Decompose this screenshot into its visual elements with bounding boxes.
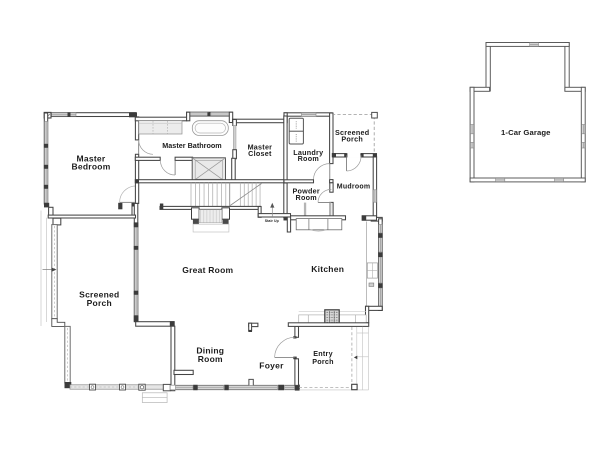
svg-text:Closet: Closet [248,149,272,158]
svg-text:Porch: Porch [87,298,112,308]
svg-text:Porch: Porch [341,135,363,144]
svg-text:Room: Room [198,354,223,364]
svg-text:1-Car Garage: 1-Car Garage [501,128,551,137]
svg-text:Room: Room [298,154,319,163]
svg-text:Great Room: Great Room [182,265,233,275]
svg-text:Foyer: Foyer [259,360,284,370]
svg-text:Room: Room [296,193,317,202]
svg-text:Kitchen: Kitchen [311,264,344,274]
svg-text:Mudroom: Mudroom [337,184,371,191]
svg-text:Porch: Porch [312,357,334,366]
svg-text:Bedroom: Bedroom [71,162,110,172]
svg-text:Stair Up: Stair Up [265,219,279,223]
svg-text:Master Bathroom: Master Bathroom [162,141,221,150]
